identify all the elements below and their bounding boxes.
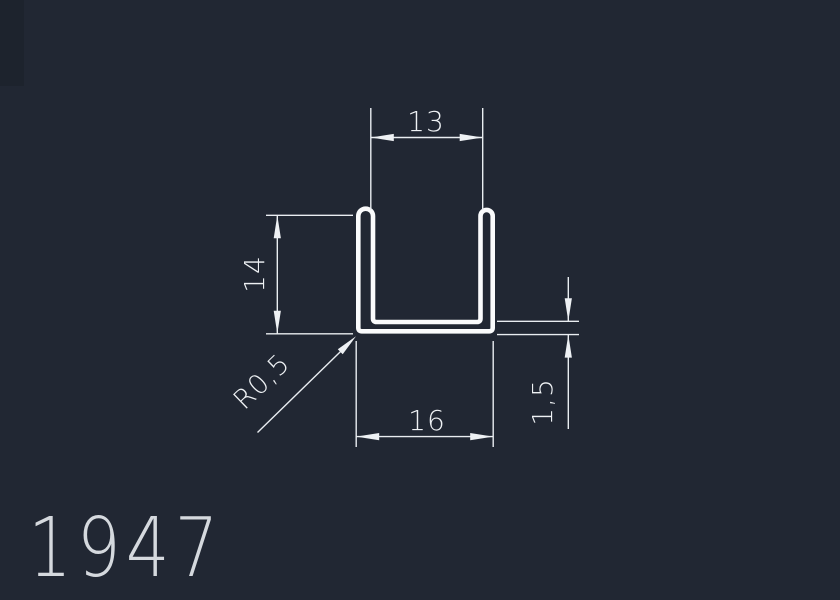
arrowhead-up-icon [274,215,281,238]
arrowhead-right-icon [460,134,483,141]
dimension-label-height: 14 [238,255,271,293]
radius-leader: R0,5 [228,336,356,432]
dimension-outer-width: 16 [356,341,493,447]
arrowhead-right-icon [470,433,493,440]
arrowhead-down-icon [565,298,572,321]
arrowhead-left-icon [371,134,394,141]
dimension-height: 14 [238,215,353,333]
arrowhead-down-icon [274,311,281,334]
part-number: 1947 [28,508,223,590]
u-profile-path [358,209,492,332]
arrowhead-left-icon [356,433,379,440]
dimension-label-outer-width: 16 [408,404,446,437]
cad-drawing-canvas: 13 14 16 1,5 [0,0,840,600]
radius-label: R0,5 [228,348,297,416]
arrowhead-up-icon [565,335,572,358]
dimension-inner-width: 13 [371,105,483,210]
dimension-wall-thickness: 1,5 [497,277,579,429]
u-profile-outline [358,209,492,332]
dimension-label-inner-width: 13 [407,105,445,138]
arrowhead-diagonal-icon [338,336,356,354]
dimension-label-wall-thickness: 1,5 [526,378,559,426]
